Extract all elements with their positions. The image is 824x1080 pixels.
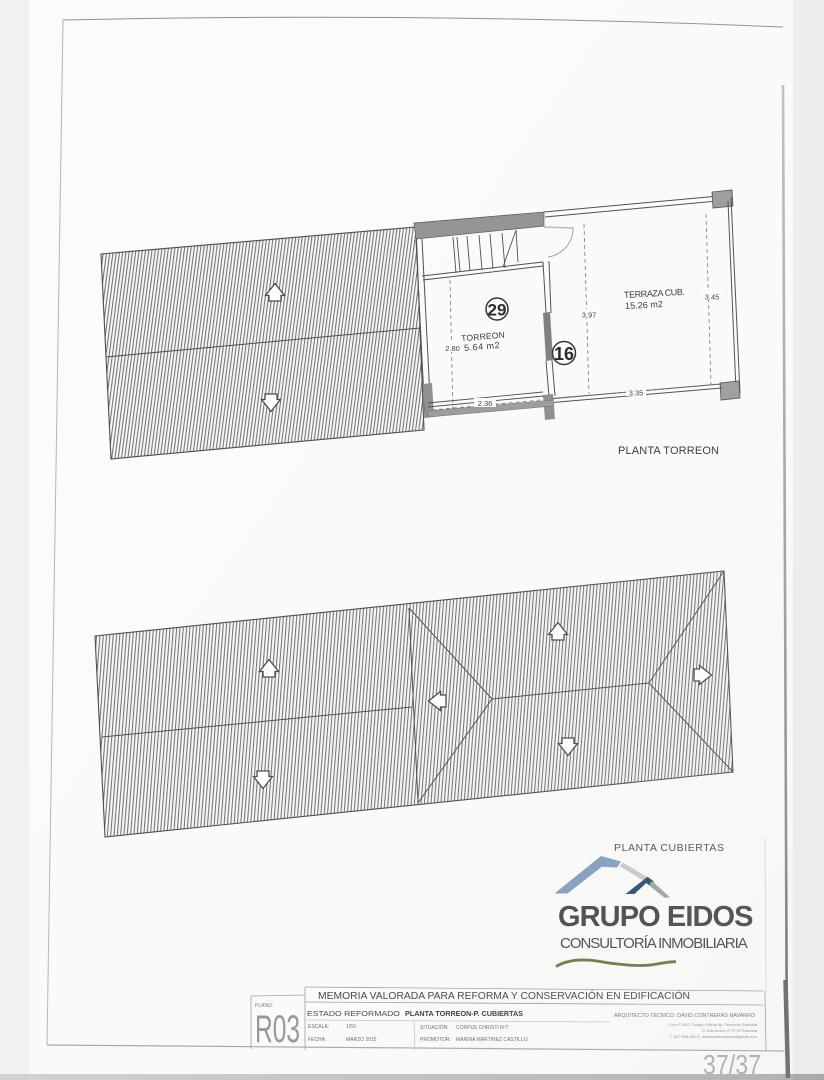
svg-text:37/37: 37/37 [703,1049,761,1080]
